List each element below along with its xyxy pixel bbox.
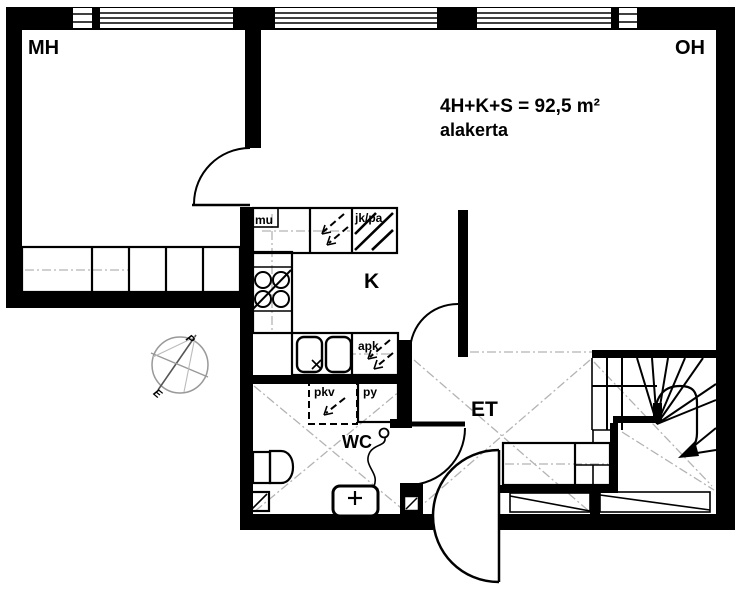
window: [275, 8, 437, 28]
label-fridge-freezer: jk/pa: [354, 211, 383, 225]
room-label-living: OH: [675, 37, 705, 59]
label-washer-reservation: pkv: [314, 385, 335, 399]
window: [100, 8, 233, 28]
label-dishwasher: apk: [358, 339, 379, 353]
label-microwave: mu: [255, 213, 273, 227]
window: [73, 8, 92, 28]
wall-left: [6, 7, 22, 308]
wall-bottom-right: [500, 514, 735, 530]
wall-bottom-mid-chunk: [590, 492, 600, 514]
wall-right: [716, 7, 735, 530]
room-label-kitchen: K: [364, 270, 379, 293]
wall-closet-bottom: [500, 485, 613, 493]
label-washer: py: [363, 385, 377, 399]
wall-wc-door-stub: [390, 419, 409, 428]
duct-symbol-icon: [405, 497, 419, 511]
wall-west-lower: [240, 207, 253, 530]
room-label-bedroom: MH: [28, 37, 59, 59]
window: [619, 8, 637, 28]
room-label-hall: ET: [471, 398, 498, 421]
floor-label: alakerta: [440, 120, 509, 140]
wall-stair-lower: [610, 423, 618, 493]
floor-plan: P E MH OH 4H+K+S = 92,5 m² alakerta K ET…: [0, 0, 741, 595]
wall-mh-kitchen: [245, 7, 261, 148]
window: [477, 8, 611, 28]
wall-kitchen-hall: [458, 210, 468, 357]
wall-wc-hall: [398, 340, 412, 428]
wall-mh-bottom: [6, 292, 253, 308]
wall-stair-top: [592, 350, 716, 358]
area-title: 4H+K+S = 92,5 m²: [440, 96, 600, 117]
room-label-wc: WC: [342, 432, 372, 452]
windows: [73, 8, 637, 28]
